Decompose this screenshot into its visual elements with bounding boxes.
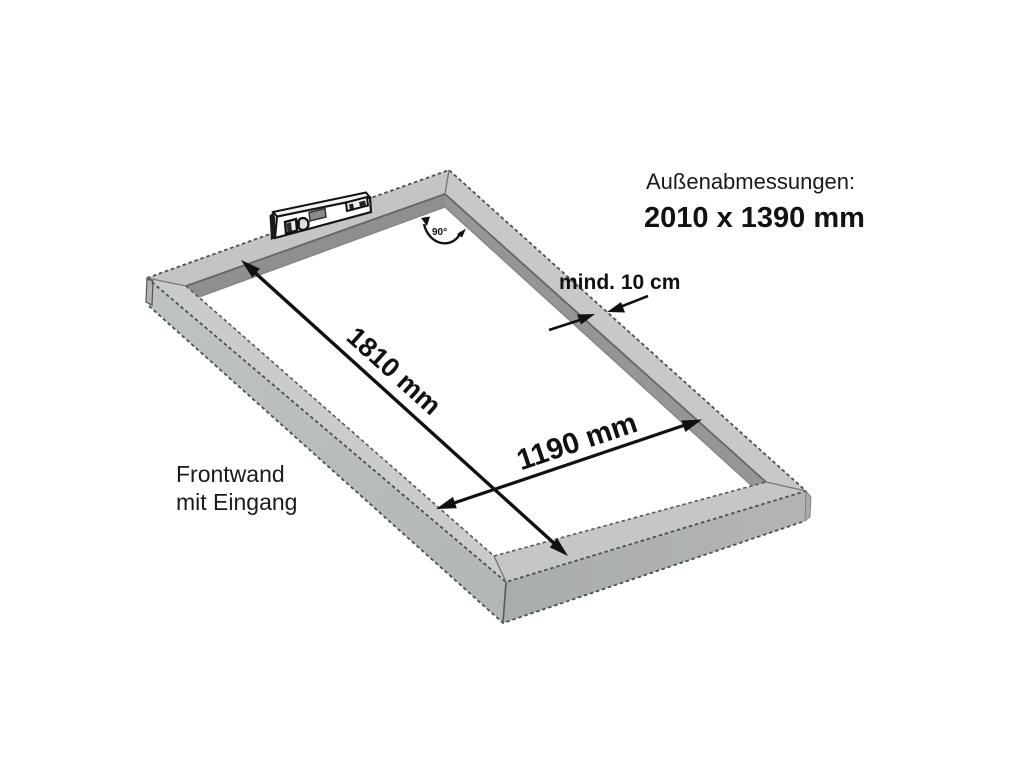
svg-text:Frontwand: Frontwand: [176, 461, 285, 487]
svg-text:2010 x 1390 mm: 2010 x 1390 mm: [644, 202, 865, 234]
svg-text:mit Eingang: mit Eingang: [176, 489, 297, 515]
svg-text:Außenabmessungen:: Außenabmessungen:: [646, 169, 855, 194]
svg-text:90°: 90°: [432, 227, 447, 238]
svg-text:mind. 10 cm: mind. 10 cm: [559, 271, 680, 294]
